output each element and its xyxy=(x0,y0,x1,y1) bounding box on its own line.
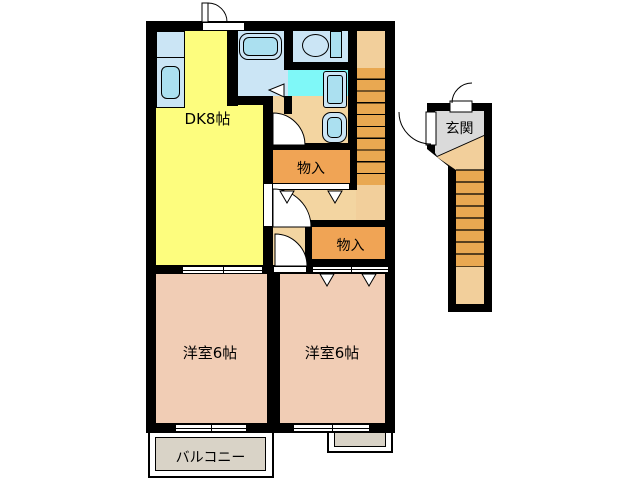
window-bedroom-left xyxy=(175,424,247,432)
label-storage-upper: 物入 xyxy=(272,158,350,178)
label-bedroom-right: 洋室6帖 xyxy=(273,342,391,363)
dk-top-door-gap xyxy=(202,22,245,31)
wall-stairs-left xyxy=(348,21,357,145)
label-balcony: バルコニー xyxy=(153,447,268,467)
entrance-top-door xyxy=(450,83,472,112)
label-entrance: 玄関 xyxy=(435,118,484,138)
wall-dk-hall xyxy=(263,96,273,266)
wall-right xyxy=(385,21,395,433)
wall-left xyxy=(146,21,156,433)
label-bedroom-left: 洋室6帖 xyxy=(150,342,270,363)
entrance-left-door xyxy=(399,112,436,145)
washing-machine-inner xyxy=(327,75,343,104)
approach-stairs-icon xyxy=(456,170,484,267)
stairs-top-landing xyxy=(356,25,386,68)
wall-dk-bath xyxy=(227,21,238,106)
bathtub-inner xyxy=(243,37,278,56)
hall-bedroom-door-gap xyxy=(273,266,307,273)
kitchen-sink-icon xyxy=(161,66,180,99)
internal-stairs-icon xyxy=(356,68,386,185)
dk-hall-door-gap xyxy=(263,183,273,227)
sliding-door-dk-bedroom xyxy=(182,266,263,274)
label-dk: DK8帖 xyxy=(155,108,260,129)
sliding-door-storage-lower xyxy=(312,266,389,273)
approach-stairs-steps xyxy=(456,170,484,267)
dk-top-door xyxy=(202,3,227,22)
approach-stairs-landing xyxy=(456,267,484,304)
wall-washroom-left xyxy=(284,96,292,114)
wall-top xyxy=(146,21,395,31)
toilet-tank xyxy=(330,31,342,58)
toilet-icon xyxy=(302,34,329,57)
floor-plan: DK8帖 物入 物入 洋室6帖 洋室6帖 バルコニー 玄関 xyxy=(0,0,640,480)
stairs-bottom-landing xyxy=(356,185,386,225)
approach-stairs-upper xyxy=(437,136,484,170)
label-storage-lower: 物入 xyxy=(312,235,389,255)
washbasin-inner xyxy=(327,117,342,138)
storage-upper-door xyxy=(272,183,350,190)
wall-toilet-bottom xyxy=(284,62,353,70)
window-bedroom-right xyxy=(293,424,370,432)
